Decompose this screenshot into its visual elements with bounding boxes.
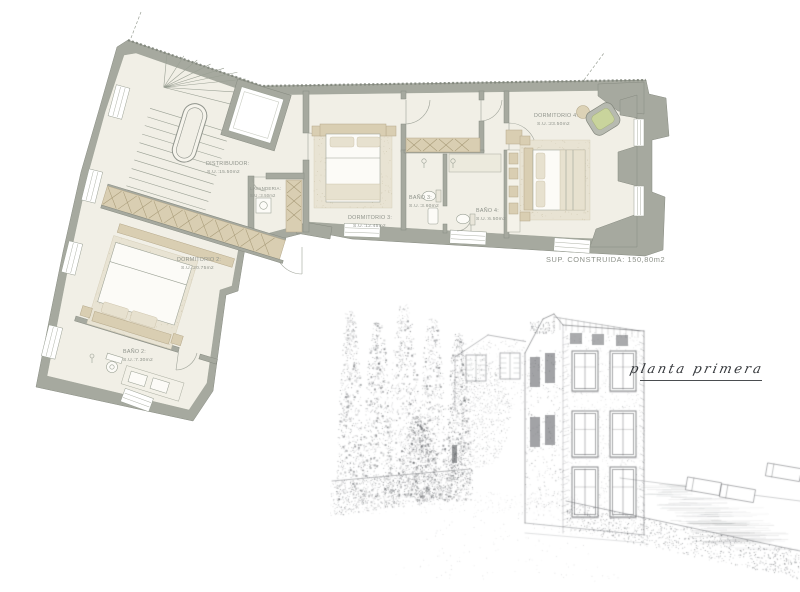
room-label-distribuidor: DISTRIBUIDOR: (206, 161, 249, 167)
room-label-lavanderia: LAVANDERIA: (250, 186, 281, 191)
room-label-dormitorio-3: DORMITORIO 3: (348, 215, 392, 221)
washer-icon (256, 198, 271, 213)
svg-text:S.U.:12.45m2: S.U.:12.45m2 (353, 223, 386, 229)
svg-text:S.U.:15.50m2: S.U.:15.50m2 (207, 169, 240, 175)
svg-text:S.U.:23.50m2: S.U.:23.50m2 (537, 121, 570, 127)
room-label-dormitorio-2: DORMITORIO 2: (177, 257, 221, 263)
built-area-total: SUP. CONSTRUIDA: 150,80m2 (546, 255, 665, 264)
sink-icon (428, 208, 438, 224)
room-label-dormitorio-4: DORMITORIO 4: (534, 113, 578, 119)
room-label-bano-2: BAÑO 2: (123, 348, 146, 355)
toilet-icon (107, 362, 118, 373)
svg-text:S.U.:3.60m2: S.U.:3.60m2 (409, 203, 439, 209)
toilet-icon (457, 214, 470, 224)
svg-text:S.U.:20.75m2: S.U.:20.75m2 (181, 265, 214, 271)
bed-dormitorio-3 (312, 124, 396, 208)
room-label-bano-3: BAÑO 3: (409, 194, 432, 201)
svg-text:S.U.:7.30m2: S.U.:7.30m2 (123, 357, 153, 363)
shower-tray (449, 154, 501, 172)
room-label-bano-4: BAÑO 4: (476, 207, 499, 214)
exterior-sketch (330, 295, 800, 585)
svg-text:S.U.:6.50m2: S.U.:6.50m2 (476, 216, 506, 222)
svg-text:S.U.:3.50m2: S.U.:3.50m2 (250, 193, 276, 198)
brochure-page: DISTRIBUIDOR: S.U.:15.50m2 LAVANDERIA: S… (0, 0, 800, 592)
